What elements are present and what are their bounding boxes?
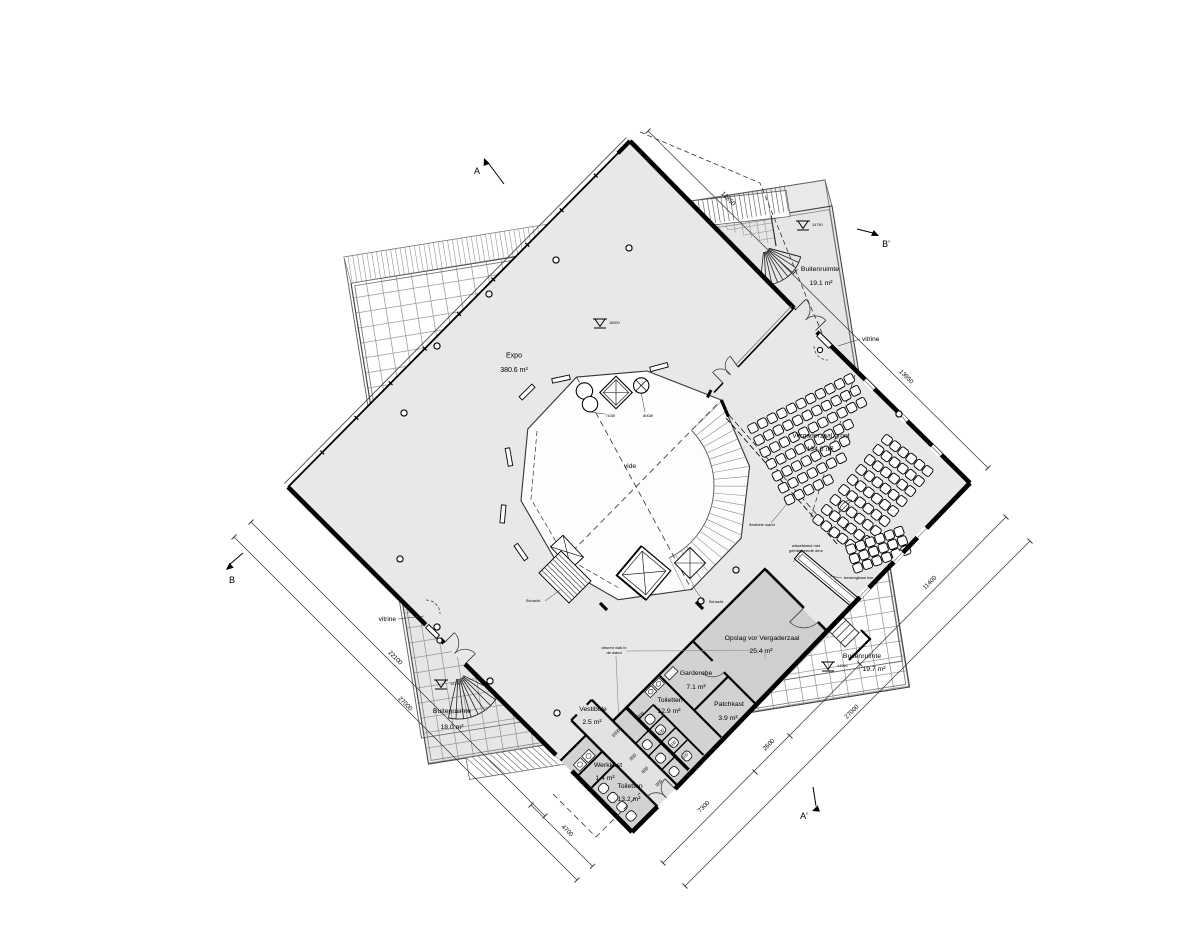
svg-text:Schacht: Schacht [526, 598, 541, 603]
svg-text:Vergaderzaal groot: Vergaderzaal groot [792, 433, 850, 440]
svg-text:flexibele wand: flexibele wand [749, 522, 774, 527]
svg-text:134.6 m²: 134.6 m² [807, 446, 835, 453]
svg-text:beweegbaar bar: beweegbaar bar [844, 575, 874, 580]
svg-text:B: B [229, 575, 235, 585]
svg-text:13.2 m²: 13.2 m² [617, 796, 641, 803]
svg-text:14060: 14060 [837, 664, 848, 668]
svg-text:vitrine: vitrine [379, 616, 397, 623]
svg-text:Opslag vor Vergaderzaal: Opslag vor Vergaderzaal [725, 635, 800, 642]
svg-text:25.4 m²: 25.4 m² [749, 648, 773, 655]
svg-text:Vestibule: Vestibule [579, 706, 607, 713]
svg-text:de wand: de wand [606, 650, 621, 655]
svg-text:Toiletten: Toiletten [657, 697, 683, 704]
svg-text:12.9 m²: 12.9 m² [657, 708, 681, 715]
svg-text:B': B' [882, 239, 890, 249]
svg-text:14790: 14790 [450, 682, 461, 686]
svg-text:19.7 m²: 19.7 m² [862, 666, 886, 673]
svg-text:18.0 m²: 18.0 m² [440, 724, 464, 731]
svg-text:Buitenruimte: Buitenruimte [433, 708, 471, 715]
svg-text:800Ø: 800Ø [643, 413, 653, 418]
svg-text:Buitenruimte: Buitenruimte [843, 653, 881, 660]
svg-text:15000: 15000 [609, 321, 620, 325]
svg-text:Patchkast: Patchkast [714, 701, 744, 708]
svg-text:A: A [474, 166, 480, 176]
svg-text:Schacht: Schacht [709, 599, 724, 604]
svg-text:Buitenruimte: Buitenruimte [801, 266, 839, 273]
svg-text:A': A' [800, 811, 808, 821]
svg-text:Werkkast: Werkkast [594, 762, 622, 769]
svg-text:1.4 m²: 1.4 m² [595, 775, 615, 782]
svg-text:Expo: Expo [506, 353, 522, 360]
svg-text:vide: vide [624, 463, 636, 470]
svg-text:Garderobe: Garderobe [680, 670, 713, 677]
svg-text:vitrine: vitrine [862, 336, 880, 343]
svg-text:710Ø: 710Ø [605, 413, 615, 418]
svg-text:3.9 m²: 3.9 m² [718, 715, 738, 722]
svg-text:Toiletten: Toiletten [617, 783, 643, 790]
svg-text:2.5 m²: 2.5 m² [582, 719, 602, 726]
svg-text:19.1 m²: 19.1 m² [809, 280, 833, 287]
svg-text:geïntegreerde deur: geïntegreerde deur [789, 548, 824, 553]
svg-text:380.6 m²: 380.6 m² [500, 367, 528, 374]
svg-text:14790: 14790 [812, 223, 823, 227]
svg-text:7.1 m²: 7.1 m² [686, 684, 706, 691]
